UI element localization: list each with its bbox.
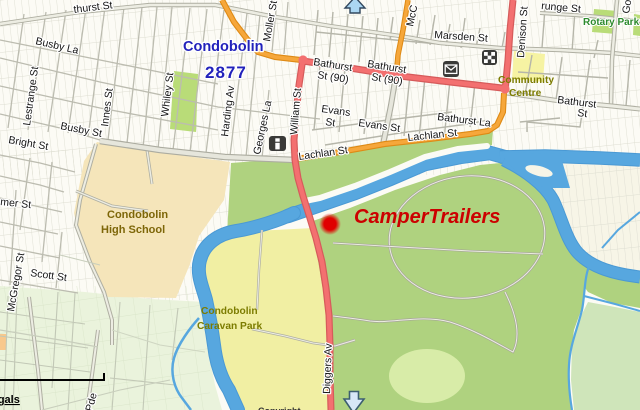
svg-text:Go: Go	[620, 0, 634, 15]
svg-text:Condobolin: Condobolin	[183, 39, 264, 55]
svg-text:Condobolin: Condobolin	[201, 306, 258, 317]
svg-text:Diggers Av: Diggers Av	[321, 342, 335, 394]
svg-text:Caravan Park: Caravan Park	[197, 321, 262, 332]
svg-text:Legals: Legals	[0, 394, 20, 406]
svg-text:St: St	[325, 116, 337, 129]
svg-text:Community: Community	[498, 75, 554, 86]
svg-text:St: St	[577, 107, 588, 120]
svg-text:2877: 2877	[205, 63, 247, 82]
svg-text:Rotary Park: Rotary Park	[583, 17, 640, 28]
svg-text:Copyright: Copyright	[258, 406, 301, 410]
svg-text:Condobolin: Condobolin	[107, 209, 168, 221]
svg-text:Centre: Centre	[509, 88, 542, 99]
svg-text:High School: High School	[101, 224, 165, 236]
svg-text:CamperTrailers: CamperTrailers	[354, 206, 500, 228]
